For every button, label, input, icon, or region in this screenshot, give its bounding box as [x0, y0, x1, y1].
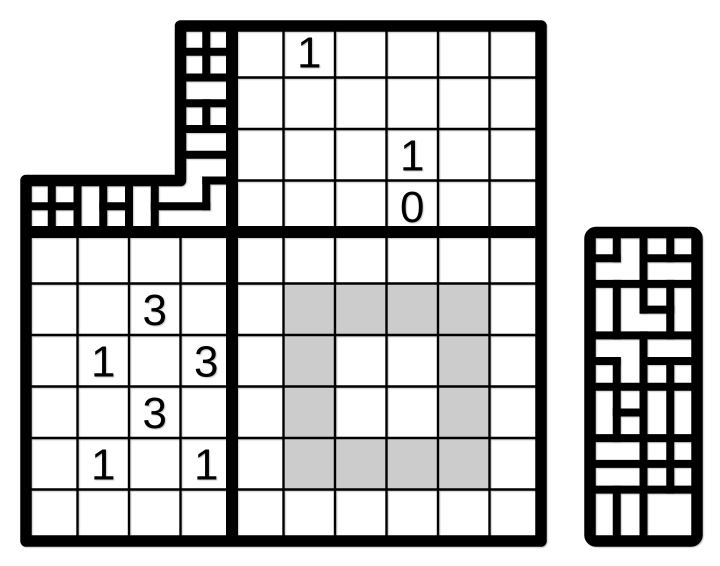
shaded-cell: [438, 335, 490, 387]
clue-number: 3: [194, 337, 218, 386]
shaded-cell: [284, 438, 336, 490]
clue-number: 1: [91, 440, 115, 489]
shaded-cell: [438, 284, 490, 336]
clue-number: 3: [143, 389, 167, 438]
shaded-cell: [387, 284, 439, 336]
clue-number: 1: [400, 131, 424, 180]
puzzle-figure: 110313311: [0, 0, 720, 566]
clue-number: 1: [194, 440, 218, 489]
clue-number: 3: [143, 286, 167, 335]
shaded-cell: [284, 387, 336, 439]
shaded-cell: [335, 438, 387, 490]
clue-number: 0: [400, 183, 424, 232]
shaded-cell: [284, 335, 336, 387]
clue-number: 1: [91, 337, 115, 386]
shaded-cell: [387, 438, 439, 490]
shaded-cell: [335, 284, 387, 336]
puzzle-figure-stage: 110313311: [0, 0, 720, 566]
shaded-cell: [438, 387, 490, 439]
clue-number: 1: [297, 28, 321, 77]
shaded-cell: [438, 438, 490, 490]
shaded-cell: [284, 284, 336, 336]
